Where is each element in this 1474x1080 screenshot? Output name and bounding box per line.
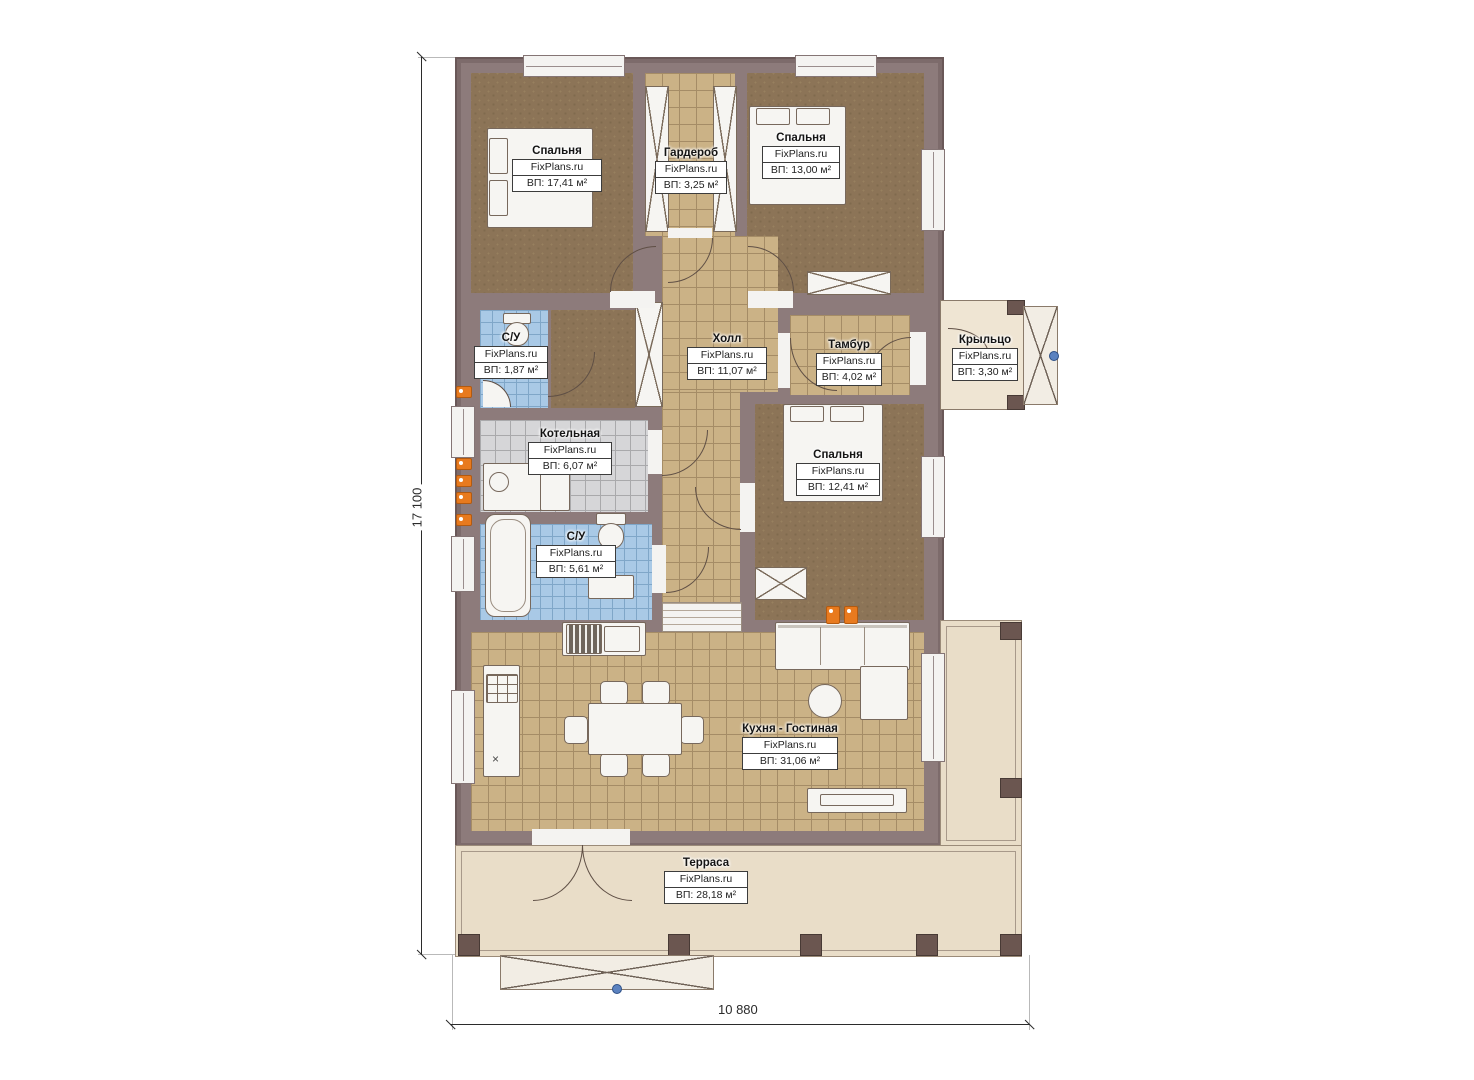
machine-door xyxy=(489,472,509,492)
room-label-bedroom-2: Спальня FixPlans.ru ВП: 13,00 м² xyxy=(762,132,840,179)
dimension-line-horizontal xyxy=(450,1024,1030,1025)
terrace-post xyxy=(1000,778,1022,798)
window xyxy=(523,55,625,77)
room-info-box: FixPlans.ru ВП: 31,06 м² xyxy=(742,737,838,770)
radiator-icon xyxy=(456,386,472,398)
room-info-box: FixPlans.ru ВП: 3,25 м² xyxy=(655,161,727,194)
pillow xyxy=(796,108,830,125)
room-name: Спальня xyxy=(796,449,880,461)
room-name: Спальня xyxy=(512,145,602,157)
window xyxy=(451,406,475,458)
radiator-icon xyxy=(456,475,472,487)
window xyxy=(451,536,475,592)
door-gap xyxy=(652,545,666,593)
chair xyxy=(600,753,628,777)
radiator-icon xyxy=(456,514,472,526)
dimension-value-horizontal: 10 880 xyxy=(715,1002,761,1017)
sofa-seam xyxy=(864,627,865,665)
room-name: Терраса xyxy=(664,857,748,869)
radiator-icon xyxy=(456,458,472,470)
room-name: Котельная xyxy=(528,428,612,440)
pillow xyxy=(489,180,508,216)
room-label-bedroom-3: Спальня FixPlans.ru ВП: 12,41 м² xyxy=(796,449,880,496)
sofa-chaise xyxy=(860,666,908,720)
room-area: ВП: 5,61 м² xyxy=(537,561,615,577)
room-info-box: FixPlans.ru ВП: 6,07 м² xyxy=(528,442,612,475)
room-name: Кухня - Гостиная xyxy=(742,723,838,735)
extension-line xyxy=(1029,955,1030,1030)
chair xyxy=(642,681,670,705)
room-watermark: FixPlans.ru xyxy=(529,443,611,458)
room-area: ВП: 1,87 м² xyxy=(475,362,547,378)
room-name: Гардероб xyxy=(655,147,727,159)
room-label-hall: Холл FixPlans.ru ВП: 11,07 м² xyxy=(687,333,767,380)
room-info-box: FixPlans.ru ВП: 13,00 м² xyxy=(762,146,840,179)
chair xyxy=(564,716,588,744)
room-watermark: FixPlans.ru xyxy=(817,354,881,369)
room-label-bathroom-2: С/У FixPlans.ru ВП: 5,61 м² xyxy=(536,531,616,578)
radiator-icon xyxy=(844,606,858,624)
dimension-value-vertical: 17 100 xyxy=(409,485,424,531)
room-watermark: FixPlans.ru xyxy=(953,349,1017,364)
sofa-seam xyxy=(820,627,821,665)
room-area: ВП: 28,18 м² xyxy=(665,887,747,903)
room-info-box: FixPlans.ru ВП: 4,02 м² xyxy=(816,353,882,386)
window xyxy=(921,149,945,231)
chair xyxy=(600,681,628,705)
room-label-kitchen-living: Кухня - Гостиная FixPlans.ru ВП: 31,06 м… xyxy=(742,723,838,770)
door-gap xyxy=(778,333,790,388)
room-label-wardrobe: Гардероб FixPlans.ru ВП: 3,25 м² xyxy=(655,147,727,194)
door-leaf xyxy=(668,228,712,238)
room-info-box: FixPlans.ru ВП: 11,07 м² xyxy=(687,347,767,380)
room-area: ВП: 31,06 м² xyxy=(743,753,837,769)
room-name: С/У xyxy=(536,531,616,543)
vent-cross-marker: × xyxy=(492,752,499,766)
sofa-back xyxy=(778,625,907,628)
room-area: ВП: 6,07 м² xyxy=(529,458,611,474)
extension-line xyxy=(452,955,453,1030)
room-label-terrace: Терраса FixPlans.ru ВП: 28,18 м² xyxy=(664,857,748,904)
coffee-table xyxy=(808,684,842,718)
dining-table xyxy=(588,703,682,755)
bedroom-3-closet-hatch xyxy=(755,567,807,600)
room-info-box: FixPlans.ru ВП: 17,41 м² xyxy=(512,159,602,192)
window xyxy=(451,690,475,784)
room-area: ВП: 12,41 м² xyxy=(797,479,879,495)
terrace-steps xyxy=(500,955,714,990)
room-label-tambour: Тамбур FixPlans.ru ВП: 4,02 м² xyxy=(816,339,882,386)
bedroom-2-closet-hatch xyxy=(807,271,891,295)
entrance-door-gap xyxy=(910,332,926,385)
room-name: Спальня xyxy=(762,132,840,144)
terrace-post xyxy=(916,934,938,956)
room-watermark: FixPlans.ru xyxy=(665,872,747,887)
terrace-post xyxy=(1000,622,1022,640)
room-label-porch: Крыльцо FixPlans.ru ВП: 3,30 м² xyxy=(952,334,1018,381)
tv xyxy=(820,794,894,806)
door-gap xyxy=(648,430,662,474)
room-label-bathroom-1: С/У FixPlans.ru ВП: 1,87 м² xyxy=(474,332,548,379)
sofa xyxy=(775,622,910,670)
room-watermark: FixPlans.ru xyxy=(688,348,766,363)
pillow xyxy=(830,406,864,422)
room-info-box: FixPlans.ru ВП: 1,87 м² xyxy=(474,346,548,379)
room-watermark: FixPlans.ru xyxy=(656,162,726,177)
room-label-boiler-room: Котельная FixPlans.ru ВП: 6,07 м² xyxy=(528,428,612,475)
room-info-box: FixPlans.ru ВП: 28,18 м² xyxy=(664,871,748,904)
terrace-post xyxy=(800,934,822,956)
pillow xyxy=(756,108,790,125)
room-area: ВП: 4,02 м² xyxy=(817,369,881,385)
floor-plan-canvas: × Спальня FixPlans.ru ВП: 17,41 м² Гарде… xyxy=(0,0,1474,1080)
window xyxy=(795,55,877,77)
room-watermark: FixPlans.ru xyxy=(763,147,839,162)
radiator-icon xyxy=(826,606,840,624)
room-name: Тамбур xyxy=(816,339,882,351)
radiator-icon xyxy=(456,492,472,504)
room-watermark: FixPlans.ru xyxy=(743,738,837,753)
room-info-box: FixPlans.ru ВП: 5,61 м² xyxy=(536,545,616,578)
hall-kitchen-threshold xyxy=(662,602,742,632)
room-name: С/У xyxy=(474,332,548,344)
kitchen-sink xyxy=(604,626,640,652)
terrace-right-wing xyxy=(940,620,1022,847)
window xyxy=(921,653,945,762)
bathtub xyxy=(485,514,531,617)
french-door-gap xyxy=(532,829,630,845)
door-gap xyxy=(748,291,793,308)
room-watermark: FixPlans.ru xyxy=(475,347,547,362)
room-name: Крыльцо xyxy=(952,334,1018,346)
chair xyxy=(680,716,704,744)
hall-closet-hatch xyxy=(635,302,663,407)
room-watermark: FixPlans.ru xyxy=(797,464,879,479)
cooktop-burners xyxy=(486,674,518,703)
entry-point-marker xyxy=(612,984,622,994)
door-gap xyxy=(610,291,655,308)
room-area: ВП: 13,00 м² xyxy=(763,162,839,178)
room-info-box: FixPlans.ru ВП: 3,30 м² xyxy=(952,348,1018,381)
terrace-post xyxy=(668,934,690,956)
room-name: Холл xyxy=(687,333,767,345)
room-area: ВП: 11,07 м² xyxy=(688,363,766,379)
sink xyxy=(588,575,634,599)
door-gap xyxy=(740,483,755,532)
chair xyxy=(642,753,670,777)
room-area: ВП: 3,25 м² xyxy=(656,177,726,193)
pillow xyxy=(489,138,508,174)
terrace-post xyxy=(1000,934,1022,956)
room-area: ВП: 3,30 м² xyxy=(953,364,1017,380)
pillow xyxy=(790,406,824,422)
terrace-post xyxy=(458,934,480,956)
room-watermark: FixPlans.ru xyxy=(537,546,615,561)
room-area: ВП: 17,41 м² xyxy=(513,175,601,191)
room-watermark: FixPlans.ru xyxy=(513,160,601,175)
room-info-box: FixPlans.ru ВП: 12,41 м² xyxy=(796,463,880,496)
stove-grill xyxy=(566,624,602,654)
window xyxy=(921,456,945,538)
room-label-bedroom-1: Спальня FixPlans.ru ВП: 17,41 м² xyxy=(512,145,602,192)
entry-point-marker xyxy=(1049,351,1059,361)
